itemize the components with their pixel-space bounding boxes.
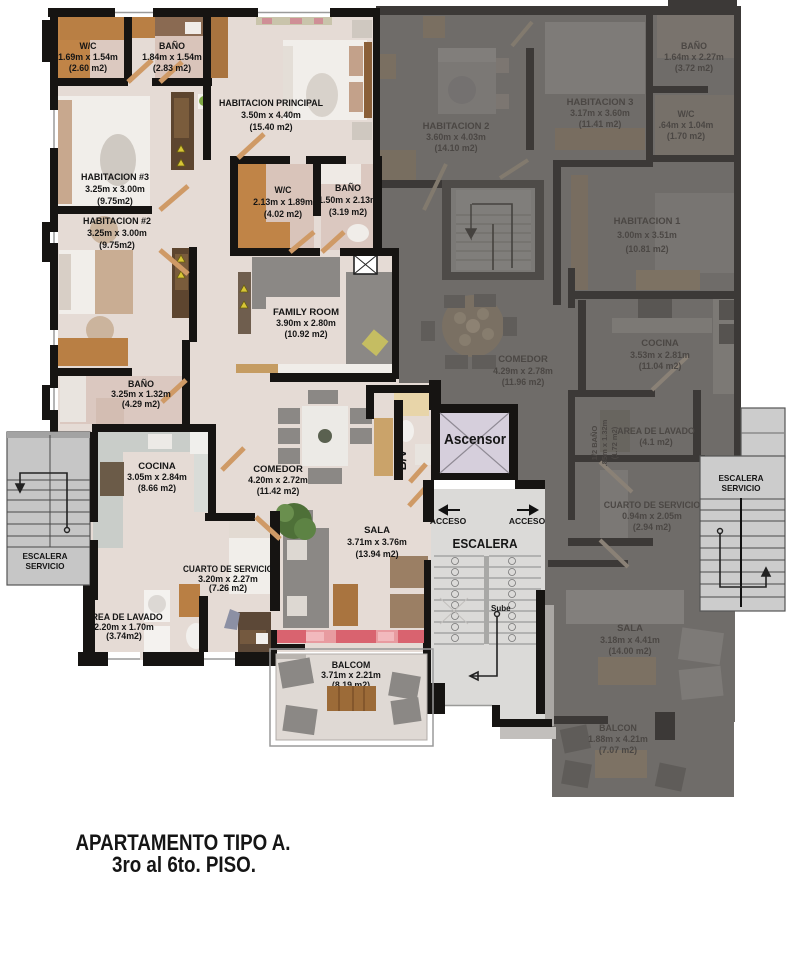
svg-text:SERVICIO: SERVICIO (26, 562, 66, 571)
svg-text:(2.60 m2): (2.60 m2) (69, 63, 107, 73)
svg-text:3.71m x 3.76m: 3.71m x 3.76m (347, 537, 407, 547)
svg-text:(4.1 m2): (4.1 m2) (639, 437, 672, 447)
svg-text:(2.83 m2): (2.83 m2) (153, 63, 191, 73)
svg-text:0.94m x 2.05m: 0.94m x 2.05m (622, 511, 682, 521)
svg-text:COMEDOR: COMEDOR (498, 354, 548, 365)
svg-text:3.60m x 4.03m: 3.60m x 4.03m (426, 132, 486, 142)
svg-text:(3.74m2): (3.74m2) (106, 631, 142, 641)
svg-text:ACCESO: ACCESO (509, 516, 546, 526)
svg-text:HABITACION 1: HABITACION 1 (614, 216, 682, 227)
svg-text:(4.29 m2): (4.29 m2) (122, 399, 160, 409)
svg-text:1.88m x 4.21m: 1.88m x 4.21m (588, 734, 648, 744)
svg-text:3.90m x 2.80m: 3.90m x 2.80m (276, 318, 336, 328)
svg-text:(4.02 m2): (4.02 m2) (264, 209, 302, 219)
svg-text:3.00m x 3.51m: 3.00m x 3.51m (617, 230, 677, 240)
svg-text:(8.66 m2): (8.66 m2) (138, 483, 176, 493)
svg-text:3.18m x 4.41m: 3.18m x 4.41m (600, 635, 660, 645)
svg-text:3ro al 6to. PISO.: 3ro al 6to. PISO. (112, 852, 256, 877)
svg-text:3.50m x 4.40m: 3.50m x 4.40m (241, 110, 301, 120)
svg-text:BALCOM: BALCOM (332, 660, 371, 670)
svg-text:(10.92 m2): (10.92 m2) (284, 329, 327, 339)
svg-text:3.17m x 3.60m: 3.17m x 3.60m (570, 108, 630, 118)
svg-text:Sube: Sube (491, 604, 511, 613)
svg-text:ESCALERA: ESCALERA (22, 552, 67, 561)
svg-text:ESCALERA: ESCALERA (453, 536, 519, 551)
svg-text:AREA DE LAVADO: AREA DE LAVADO (617, 426, 695, 436)
svg-text:(2.94 m2): (2.94 m2) (633, 522, 671, 532)
svg-text:(11.96 m2): (11.96 m2) (502, 377, 545, 387)
svg-text:1/2 BAÑO: 1/2 BAÑO (590, 426, 599, 461)
svg-text:HABITACION #3: HABITACION #3 (81, 172, 149, 183)
svg-text:(10.81 m2): (10.81 m2) (625, 244, 668, 254)
svg-text:CUARTO DE SERVICIO: CUARTO DE SERVICIO (604, 500, 701, 510)
svg-text:(7.07 m2): (7.07 m2) (599, 745, 637, 755)
svg-text:BAÑO: BAÑO (335, 183, 361, 193)
svg-text:3.25m x 3.00m: 3.25m x 3.00m (87, 228, 147, 238)
svg-text:(1.70 m2): (1.70 m2) (667, 131, 705, 141)
svg-text:COCINA: COCINA (641, 338, 679, 349)
svg-text:4.20m x 2.72m: 4.20m x 2.72m (248, 475, 308, 485)
svg-text:ESCALERA: ESCALERA (718, 474, 763, 483)
svg-text:(11.41 m2): (11.41 m2) (579, 119, 622, 129)
svg-text:SALA: SALA (617, 623, 643, 634)
svg-text:3.05m x 2.84m: 3.05m x 2.84m (127, 472, 187, 482)
svg-text:3.53m x 2.81m: 3.53m x 2.81m (630, 350, 690, 360)
svg-text:3.25m x 1.32m: 3.25m x 1.32m (111, 389, 171, 399)
svg-text:AREA DE LAVADO: AREA DE LAVADO (85, 612, 163, 622)
svg-text:B/V: B/V (395, 449, 409, 471)
svg-text:HABITACION 2: HABITACION 2 (423, 121, 490, 132)
svg-text:W/C: W/C (274, 185, 292, 195)
svg-text:.64m x 1.04m: .64m x 1.04m (659, 120, 714, 130)
svg-text:(13.94 m2): (13.94 m2) (355, 549, 398, 559)
svg-text:1.69m x 1.54m: 1.69m x 1.54m (58, 52, 118, 62)
svg-text:SERVICIO: SERVICIO (722, 484, 762, 493)
svg-text:(3.19 m2): (3.19 m2) (329, 207, 367, 217)
svg-text:(9.75m2): (9.75m2) (97, 196, 133, 206)
svg-text:4.29m x 2.78m: 4.29m x 2.78m (493, 366, 553, 376)
svg-text:1.84m x 1.54m: 1.84m x 1.54m (142, 52, 202, 62)
svg-text:(14.10 m2): (14.10 m2) (434, 143, 477, 153)
svg-text:(11.42 m2): (11.42 m2) (257, 486, 300, 496)
svg-text:(11.04 m2): (11.04 m2) (639, 361, 682, 371)
svg-text:HABITACION #2: HABITACION #2 (83, 216, 151, 227)
svg-text:Ascensor: Ascensor (444, 432, 506, 448)
svg-text:BAÑO: BAÑO (159, 41, 185, 51)
svg-text:HABITACION PRINCIPAL: HABITACION PRINCIPAL (219, 98, 323, 109)
svg-text:COMEDOR: COMEDOR (253, 464, 303, 475)
svg-text:1.64m x 2.27m: 1.64m x 2.27m (664, 52, 724, 62)
svg-text:SALA: SALA (364, 525, 390, 536)
svg-text:BALCON: BALCON (599, 723, 637, 733)
svg-text:(9.75m2): (9.75m2) (99, 240, 135, 250)
svg-text:HABITACION 3: HABITACION 3 (567, 97, 634, 108)
svg-text:1.50m x 2.13m: 1.50m x 2.13m (318, 195, 378, 205)
svg-text:(14.00 m2): (14.00 m2) (608, 646, 651, 656)
svg-text:2.13m x 1.89m: 2.13m x 1.89m (253, 197, 313, 207)
svg-text:(7.26 m2): (7.26 m2) (209, 583, 247, 593)
svg-text:FAMILY ROOM: FAMILY ROOM (273, 307, 339, 318)
svg-text:3.25m x 3.00m: 3.25m x 3.00m (85, 184, 145, 194)
svg-text:3.71m x 2.21m: 3.71m x 2.21m (321, 670, 381, 680)
svg-text:CUARTO DE SERVICIO: CUARTO DE SERVICIO (183, 564, 273, 574)
svg-text:W/C: W/C (79, 41, 97, 51)
svg-text:.85m x 1.32m: .85m x 1.32m (600, 419, 609, 466)
svg-text:(3.72 m2): (3.72 m2) (675, 63, 713, 73)
svg-text:ACCESO: ACCESO (430, 516, 467, 526)
svg-text:BAÑO: BAÑO (128, 379, 154, 389)
svg-text:COCINA: COCINA (138, 461, 176, 472)
svg-text:(15.40 m2): (15.40 m2) (249, 122, 292, 132)
svg-text:BAÑO: BAÑO (681, 41, 707, 51)
svg-text:W/C: W/C (677, 109, 695, 119)
